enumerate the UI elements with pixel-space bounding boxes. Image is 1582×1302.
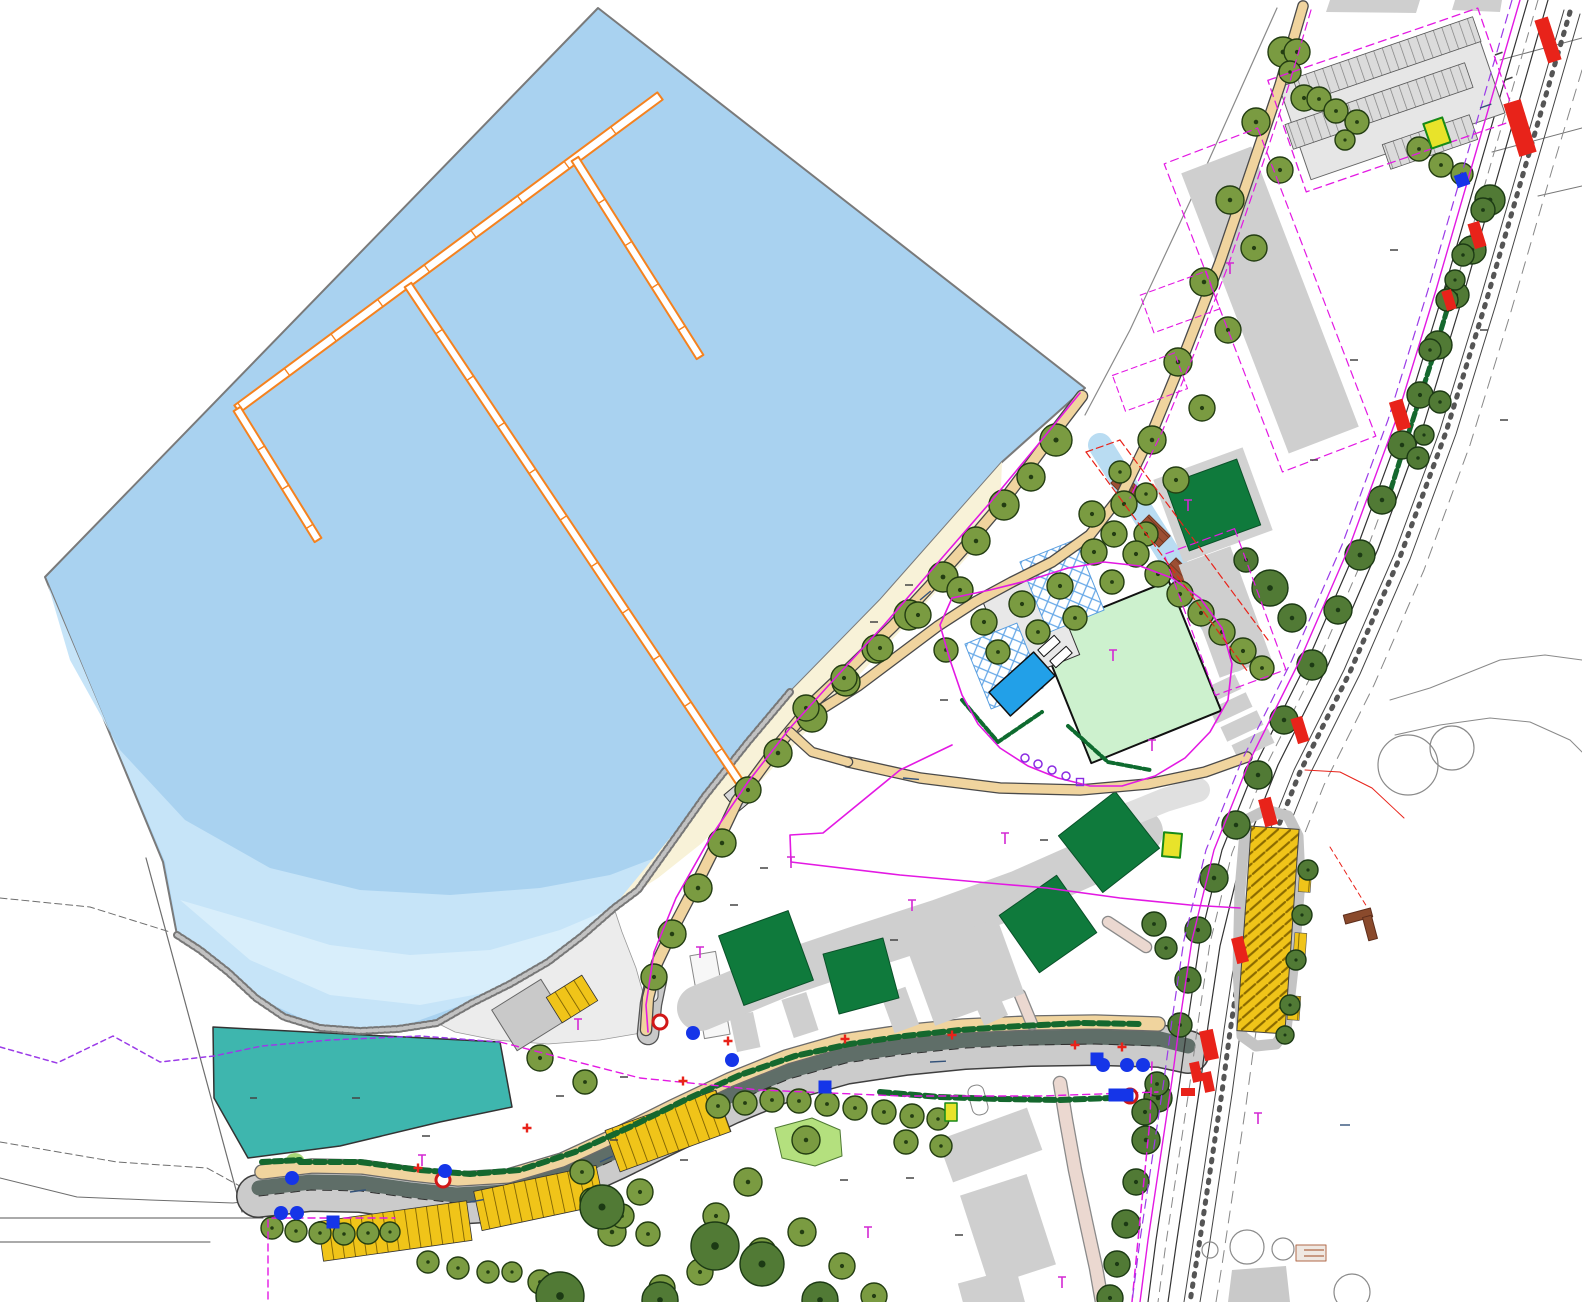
tree-center — [904, 1140, 908, 1144]
tree-center — [1212, 876, 1216, 880]
tree-center — [638, 1190, 642, 1194]
hedge — [262, 1160, 300, 1162]
tree-center — [1252, 246, 1256, 250]
tree-center — [1020, 602, 1024, 606]
tree-center — [1481, 208, 1485, 212]
tree-center — [1284, 1034, 1287, 1037]
disabled-parking-icon — [945, 1103, 957, 1121]
tree-center — [1300, 913, 1303, 916]
tree-center — [1036, 630, 1040, 634]
utility-red — [1330, 847, 1367, 907]
tree-center — [1306, 868, 1309, 871]
tree-center — [646, 1232, 650, 1236]
existing-building — [1452, 0, 1502, 12]
shed-hatched — [1296, 1245, 1326, 1261]
tree-center — [878, 646, 882, 650]
building-block — [960, 1174, 1056, 1286]
tree-center — [1053, 437, 1058, 442]
annotation-micro-text — [930, 1061, 946, 1062]
tree-center — [910, 1114, 914, 1118]
tree-center — [1439, 163, 1443, 167]
tree-center — [1144, 492, 1148, 496]
tree-center — [936, 1117, 940, 1121]
manhole-purple — [1062, 772, 1070, 780]
tree-center — [758, 1260, 765, 1267]
survey-tick — [1505, 77, 1513, 80]
sign-blue — [1091, 1053, 1104, 1066]
tree-center — [580, 1170, 584, 1174]
junction-red — [1201, 1071, 1215, 1093]
tree-center — [538, 1056, 542, 1060]
tree-center — [711, 1242, 719, 1250]
tree-center — [1202, 280, 1206, 284]
tree-center — [1002, 503, 1007, 508]
tree-center — [1417, 147, 1421, 151]
tree-center — [1196, 928, 1200, 932]
tree-center — [1294, 958, 1297, 961]
footpath-pink — [1060, 1083, 1102, 1302]
section-mark-magenta — [1254, 1113, 1262, 1124]
tree-center — [1164, 946, 1168, 950]
tree-center — [1343, 138, 1346, 141]
arc-terrace — [1128, 790, 1198, 815]
section-mark-magenta — [1001, 833, 1009, 844]
tree-center — [1254, 120, 1258, 124]
lamp-blue — [274, 1206, 288, 1220]
manhole-purple — [1048, 766, 1056, 774]
junction-red — [1181, 1088, 1195, 1096]
tree-existing-outline — [1230, 1230, 1264, 1264]
tree-center — [1228, 198, 1232, 202]
arc-wing — [730, 1012, 761, 1052]
lamp-blue — [438, 1164, 452, 1178]
tree-deciduous — [861, 1283, 887, 1302]
tree-center — [746, 788, 750, 792]
tree-center — [1174, 478, 1178, 482]
tree-center — [1400, 443, 1404, 447]
tree-center — [1226, 328, 1230, 332]
tree-center — [1124, 1222, 1128, 1226]
tree-center — [1288, 70, 1292, 74]
tree-center — [270, 1226, 274, 1230]
tree-center — [388, 1230, 391, 1233]
tree-center — [714, 1214, 718, 1218]
tree-center — [1355, 120, 1359, 124]
tree-center — [1234, 823, 1238, 827]
tree-center — [1134, 552, 1138, 556]
tree-center — [1118, 470, 1122, 474]
tree-center — [996, 650, 1000, 654]
tree-center — [1200, 406, 1204, 410]
tree-center — [770, 1098, 774, 1102]
tree-center — [610, 1230, 614, 1234]
tree-center — [1310, 663, 1315, 668]
tree-center — [1438, 400, 1442, 404]
tree-center — [1108, 1296, 1112, 1300]
tree-center — [776, 751, 780, 755]
tree-center — [342, 1232, 346, 1236]
tree-center — [743, 1101, 747, 1105]
tree-existing-outline — [1378, 735, 1438, 795]
tree-center — [652, 975, 656, 979]
section-mark-magenta — [1148, 740, 1156, 751]
tree-center — [1282, 718, 1286, 722]
tree-center — [842, 676, 846, 680]
section-mark-magenta — [1058, 1277, 1066, 1288]
sign-blue — [819, 1081, 832, 1094]
tree-center — [1453, 278, 1456, 281]
field-line — [0, 1178, 258, 1203]
tree-center — [1278, 168, 1282, 172]
tree-center — [800, 1230, 804, 1234]
utility-red — [1305, 770, 1404, 818]
tree-center — [1115, 1262, 1119, 1266]
tree-center — [882, 1110, 886, 1114]
tree-center — [1461, 253, 1465, 257]
field-line — [1390, 655, 1582, 700]
tree-center — [1260, 666, 1264, 670]
tree-center — [982, 620, 986, 624]
existing-building — [1326, 0, 1420, 13]
bus-stop-red — [1534, 16, 1561, 63]
tree-center — [974, 539, 978, 543]
tree-existing-outline — [1334, 1274, 1370, 1302]
tree-center — [797, 1099, 801, 1103]
tree-center — [916, 613, 920, 617]
tree-center — [1290, 616, 1294, 620]
tree-center — [941, 575, 946, 580]
tree-center — [1134, 1180, 1138, 1184]
plan-layers — [0, 0, 1582, 1302]
tree-center — [720, 841, 724, 845]
lamp-blue — [686, 1026, 700, 1040]
tree-center — [1199, 611, 1203, 615]
tree-center — [1380, 498, 1384, 502]
tree-center — [958, 588, 962, 592]
tree-center — [696, 886, 700, 890]
tree-center — [840, 1264, 844, 1268]
tree-center — [1155, 1082, 1159, 1086]
section-mark-magenta — [864, 1227, 872, 1238]
hydrant-red — [523, 1124, 532, 1133]
tree-center — [318, 1231, 322, 1235]
lamp-blue — [285, 1171, 299, 1185]
tree-center — [1418, 393, 1422, 397]
tree-center — [486, 1270, 490, 1274]
tree-center — [1143, 1110, 1147, 1114]
tree-center — [1112, 532, 1116, 536]
tree-center — [583, 1080, 587, 1084]
sign-blue — [1109, 1089, 1122, 1102]
tree-center — [1073, 616, 1077, 620]
sign-no-entry — [653, 1015, 667, 1029]
field-line — [0, 898, 170, 932]
sign-blue — [1121, 1089, 1134, 1102]
tree-center — [716, 1104, 720, 1108]
tree-center — [456, 1266, 460, 1270]
lamp-blue — [1136, 1058, 1150, 1072]
bench-brown — [1363, 915, 1378, 941]
tree-center — [1288, 1003, 1291, 1006]
site-plan-map[interactable] — [0, 0, 1582, 1302]
lamp-blue — [1120, 1058, 1134, 1072]
tree-center — [804, 1138, 808, 1142]
field-line — [1395, 718, 1582, 752]
tree-existing-outline — [1430, 726, 1474, 770]
disabled-parking-icon — [1162, 832, 1182, 857]
tree-existing-outline — [1202, 1242, 1218, 1258]
tree-center — [1317, 97, 1321, 101]
footpath-pink-stub — [1108, 922, 1146, 947]
manhole-purple — [1034, 760, 1042, 768]
tree-center — [510, 1270, 513, 1273]
tree-center — [1336, 608, 1340, 612]
hydrant-red — [724, 1037, 733, 1046]
sign-blue — [327, 1216, 340, 1229]
tree-center — [670, 932, 674, 936]
tree-center — [1358, 553, 1363, 558]
hydrant-red — [679, 1077, 688, 1086]
tree-center — [872, 1294, 876, 1298]
tree-center — [1267, 585, 1273, 591]
existing-building — [1228, 1266, 1290, 1302]
tree-center — [1416, 456, 1420, 460]
tree-center — [1058, 584, 1062, 588]
tree-existing-outline — [1272, 1238, 1294, 1260]
tree-center — [1302, 96, 1306, 100]
tree-center — [1092, 550, 1096, 554]
tree-center — [1029, 475, 1033, 479]
tree-center — [366, 1231, 370, 1235]
bus-stop-red — [1389, 399, 1411, 432]
tree-center — [1422, 433, 1425, 436]
tree-center — [1152, 922, 1156, 926]
tree-center — [1241, 649, 1245, 653]
tree-center — [746, 1180, 750, 1184]
tree-center — [1110, 580, 1114, 584]
tree-center — [1090, 512, 1094, 516]
tree-center — [294, 1229, 298, 1233]
tree-center — [1256, 773, 1260, 777]
tree-center — [1428, 348, 1432, 352]
tree-center — [939, 1144, 943, 1148]
tree-center — [556, 1292, 564, 1300]
tree-center — [825, 1102, 829, 1106]
lamp-blue — [725, 1053, 739, 1067]
lamp-blue — [290, 1206, 304, 1220]
site-plan-viewport[interactable] — [0, 0, 1582, 1302]
tree-center — [853, 1106, 857, 1110]
bus-stop-red — [1503, 99, 1536, 157]
tree-center — [598, 1203, 605, 1210]
tree-center — [426, 1260, 430, 1264]
tree-center — [698, 1270, 702, 1274]
manhole-purple — [1021, 754, 1029, 762]
tree-center — [1150, 438, 1154, 442]
tree-center — [1334, 109, 1338, 113]
arc-wing — [781, 992, 818, 1038]
survey-tick — [1495, 52, 1503, 55]
